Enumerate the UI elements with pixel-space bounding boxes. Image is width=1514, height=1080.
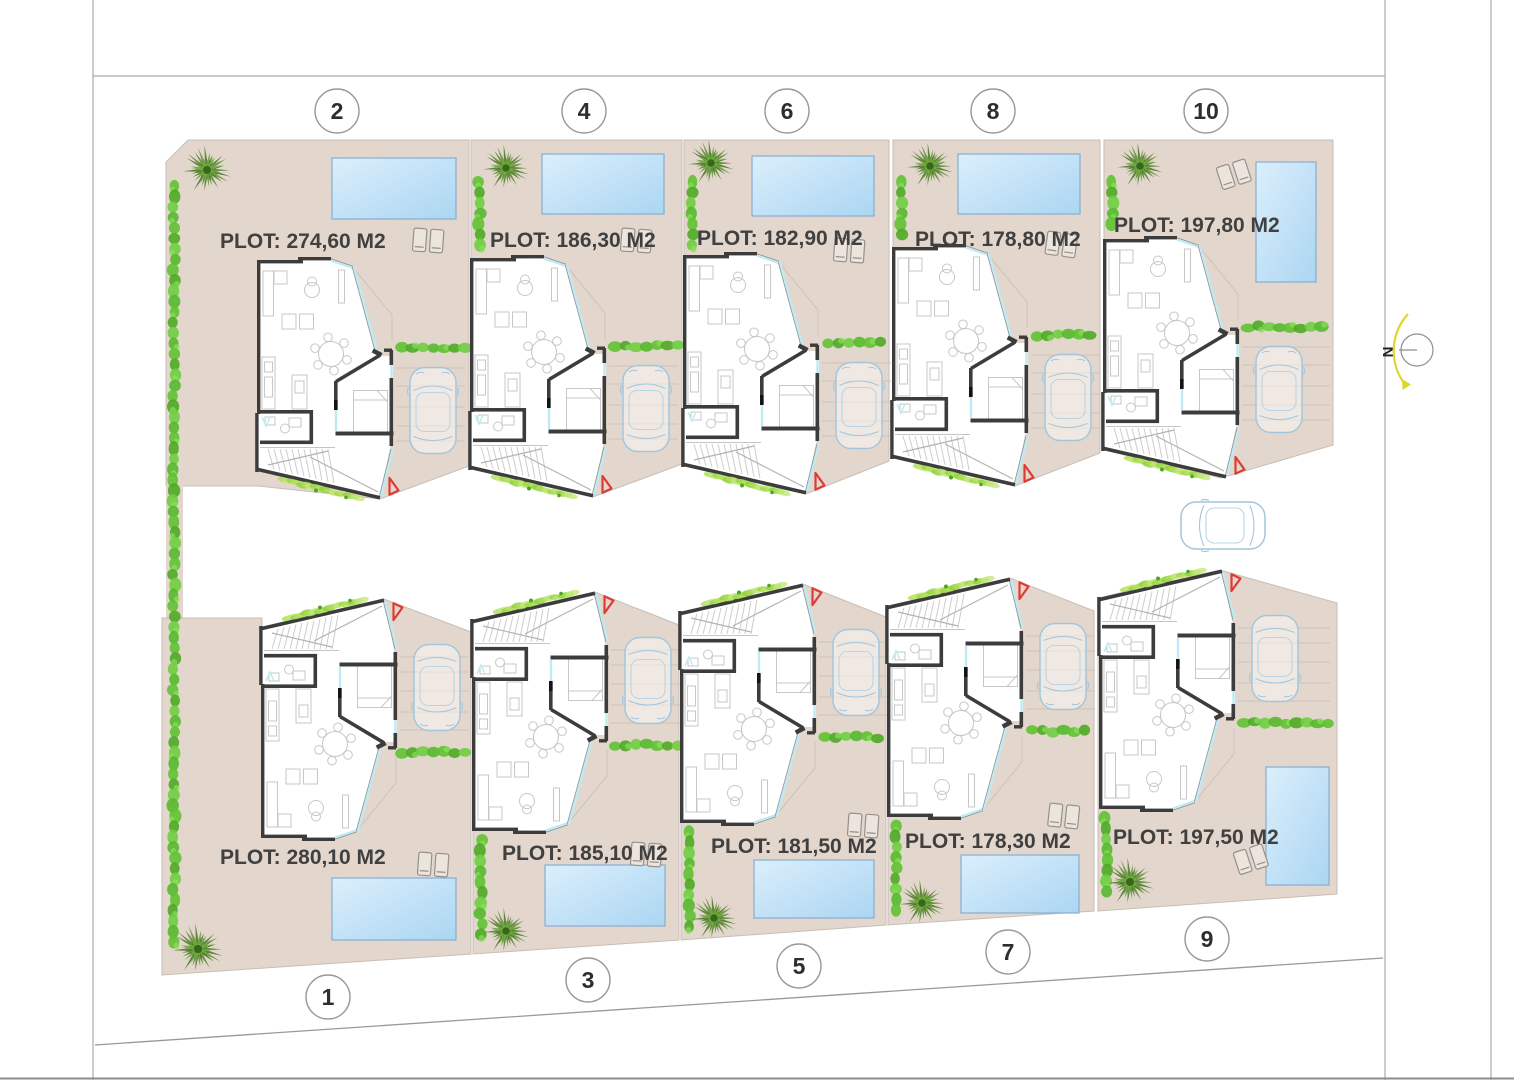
svg-text:PLOT: 178,80 M2: PLOT: 178,80 M2 <box>915 228 1081 251</box>
svg-text:7: 7 <box>1002 939 1015 965</box>
svg-text:8: 8 <box>987 98 1000 124</box>
svg-text:3: 3 <box>582 967 595 993</box>
svg-text:PLOT: 197,50 M2: PLOT: 197,50 M2 <box>1113 826 1279 849</box>
svg-text:4: 4 <box>578 98 591 124</box>
svg-text:2: 2 <box>331 98 344 124</box>
svg-text:PLOT: 185,10 M2: PLOT: 185,10 M2 <box>502 842 668 865</box>
svg-text:1: 1 <box>322 984 335 1010</box>
svg-text:PLOT: 178,30 M2: PLOT: 178,30 M2 <box>905 830 1071 853</box>
svg-text:9: 9 <box>1201 926 1214 952</box>
svg-text:PLOT: 182,90 M2: PLOT: 182,90 M2 <box>697 227 863 250</box>
svg-text:PLOT: 186,30 M2: PLOT: 186,30 M2 <box>490 229 656 252</box>
svg-text:PLOT: 197,80 M2: PLOT: 197,80 M2 <box>1114 214 1280 237</box>
svg-text:PLOT: 181,50 M2: PLOT: 181,50 M2 <box>711 835 877 858</box>
svg-text:6: 6 <box>781 98 794 124</box>
svg-text:PLOT: 274,60 M2: PLOT: 274,60 M2 <box>220 230 386 253</box>
svg-text:PLOT: 280,10 M2: PLOT: 280,10 M2 <box>220 846 386 869</box>
svg-text:10: 10 <box>1193 98 1219 124</box>
svg-text:5: 5 <box>793 953 806 979</box>
